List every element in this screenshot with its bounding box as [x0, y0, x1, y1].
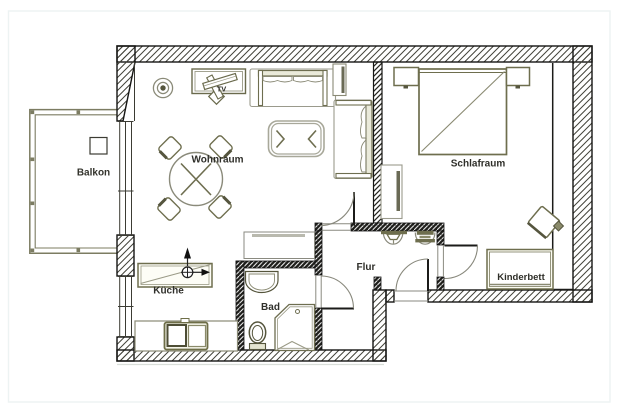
- svg-text:Bad: Bad: [261, 302, 280, 313]
- svg-text:Kinderbett: Kinderbett: [497, 272, 545, 283]
- svg-text:TV: TV: [217, 85, 227, 94]
- svg-text:Küche: Küche: [153, 286, 184, 297]
- svg-text:Schlafraum: Schlafraum: [451, 159, 506, 170]
- svg-text:Flur: Flur: [357, 262, 376, 273]
- svg-text:Wohnraum: Wohnraum: [191, 155, 243, 166]
- svg-text:Balkon: Balkon: [77, 168, 110, 179]
